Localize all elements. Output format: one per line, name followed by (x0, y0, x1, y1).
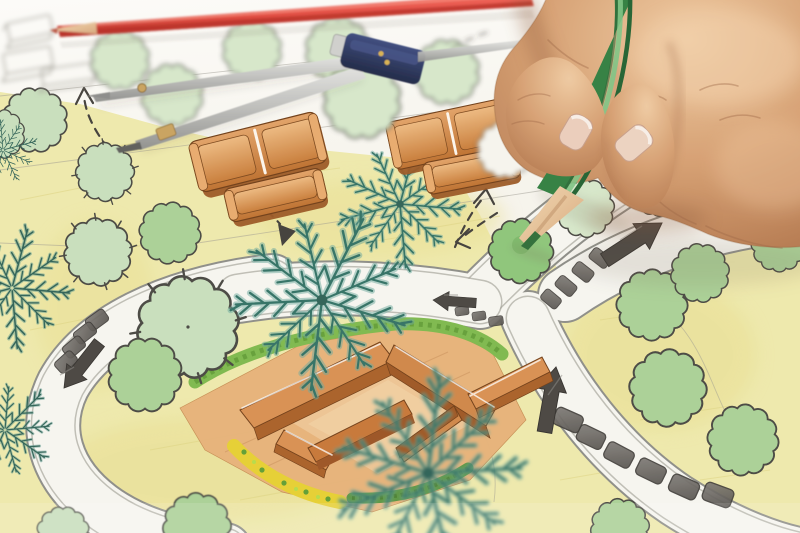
scene-canvas (0, 0, 800, 533)
bottom-soft-edge (0, 503, 800, 533)
photo-warm-overlay (0, 0, 800, 533)
photo-landscape-plan-drawing: Hand of a landscape architect coloring a… (0, 0, 800, 533)
